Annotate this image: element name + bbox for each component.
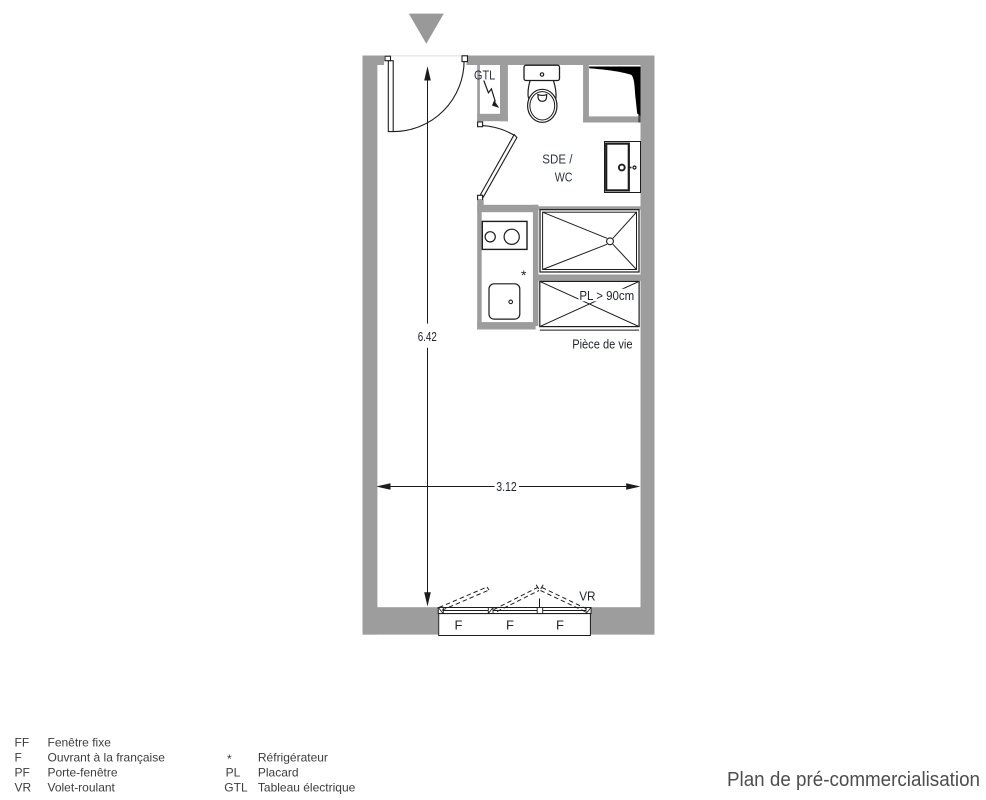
svg-text:PF: PF xyxy=(15,766,30,780)
svg-text:F: F xyxy=(556,618,564,633)
svg-text:3.12: 3.12 xyxy=(496,480,517,494)
svg-text:Fenêtre fixe: Fenêtre fixe xyxy=(48,736,112,750)
svg-text:Réfrigérateur: Réfrigérateur xyxy=(258,751,328,765)
svg-text:Plan de pré-commercialisation: Plan de pré-commercialisation xyxy=(727,769,980,791)
svg-text:Tableau électrique: Tableau électrique xyxy=(258,781,356,795)
svg-text:Ouvrant à la française: Ouvrant à la française xyxy=(48,751,166,765)
svg-text:WC: WC xyxy=(555,169,573,184)
svg-text:FF: FF xyxy=(15,736,30,750)
svg-text:Porte-fenêtre: Porte-fenêtre xyxy=(48,766,118,780)
svg-text:SDE /: SDE / xyxy=(542,152,573,167)
svg-text:Placard: Placard xyxy=(258,766,299,780)
svg-text:GTL: GTL xyxy=(224,781,248,795)
svg-text:F: F xyxy=(506,618,514,633)
svg-text:*: * xyxy=(227,752,232,766)
svg-text:*: * xyxy=(521,267,527,283)
svg-text:6.42: 6.42 xyxy=(418,330,437,344)
svg-text:F: F xyxy=(455,618,463,633)
svg-text:Volet-roulant: Volet-roulant xyxy=(48,781,116,795)
svg-text:VR: VR xyxy=(579,590,595,604)
svg-text:F: F xyxy=(15,751,22,765)
svg-text:Pièce de vie: Pièce de vie xyxy=(572,336,632,351)
svg-text:VR: VR xyxy=(15,781,32,795)
svg-text:PL > 90cm: PL > 90cm xyxy=(579,289,634,303)
svg-text:GTL: GTL xyxy=(474,68,495,83)
svg-text:PL: PL xyxy=(226,766,241,780)
